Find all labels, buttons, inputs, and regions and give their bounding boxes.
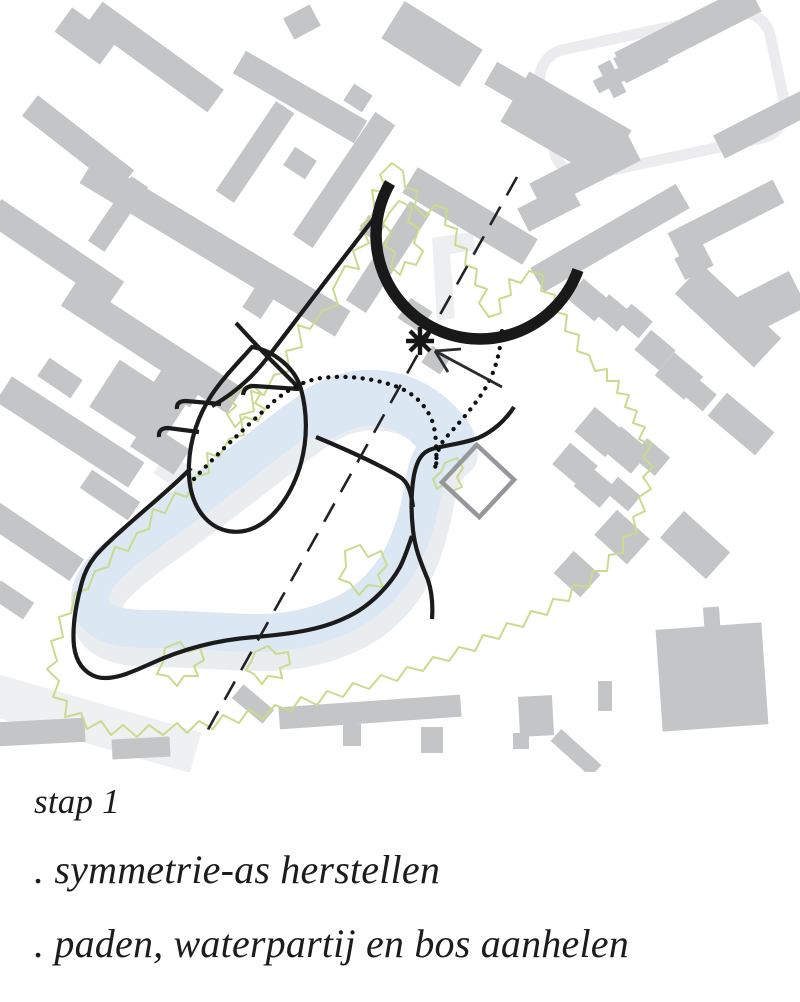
caption-bullet-paths: . paden, waterpartij en bos aanhelen [34, 920, 629, 967]
building [598, 681, 612, 711]
building [421, 727, 443, 753]
building [554, 551, 601, 597]
building [232, 684, 274, 724]
building [0, 581, 34, 620]
building [283, 4, 321, 39]
step-label: stap 1 [34, 782, 120, 822]
building [656, 622, 769, 731]
building [0, 718, 86, 746]
building [668, 180, 785, 257]
building [343, 724, 361, 746]
page: stap 1 . symmetrie-as herstellen . paden… [0, 0, 800, 1002]
building [343, 84, 372, 113]
building [708, 393, 775, 456]
site-map-wrap [0, 0, 800, 772]
building [605, 477, 641, 512]
building [660, 511, 730, 579]
building [0, 499, 84, 581]
building [112, 736, 171, 759]
building [37, 358, 82, 399]
building [513, 733, 529, 749]
building [551, 729, 602, 772]
building [283, 147, 317, 180]
building [518, 695, 554, 737]
building [381, 1, 482, 87]
building [346, 201, 430, 313]
building [216, 101, 295, 203]
caption-bullet-symmetry: . symmetrie-as herstellen [34, 846, 440, 893]
site-map [0, 0, 800, 772]
building [86, 2, 224, 113]
